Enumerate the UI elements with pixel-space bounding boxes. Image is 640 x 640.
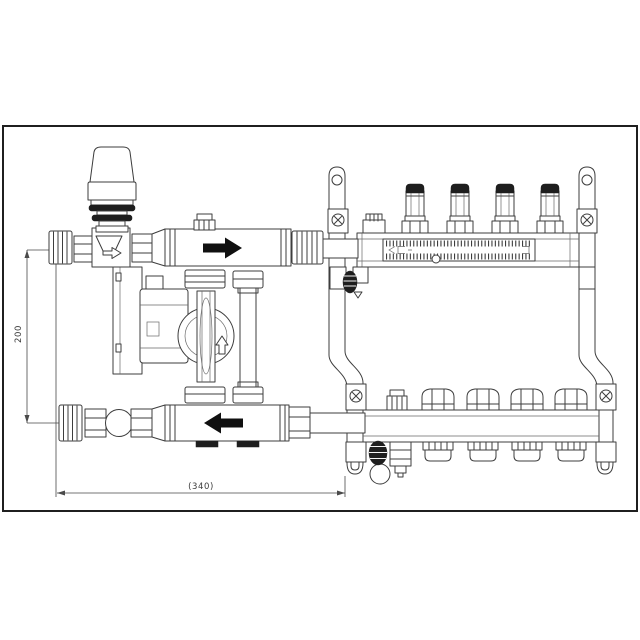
bracket-hole (582, 175, 592, 185)
bypass-riser-pipe (233, 271, 263, 403)
return-manifold-union (289, 407, 310, 438)
flow-meter-1 (402, 184, 428, 233)
manifold-flow-scale (383, 239, 535, 261)
dimension-width-340: (340) (57, 476, 345, 497)
height-dimension-label: 200 (14, 325, 24, 343)
dimension-height-200: 200 (14, 250, 59, 497)
thermostatic-mixing-valve (92, 228, 130, 267)
return-end-cap (387, 390, 407, 410)
drain-lanyard-loop (370, 464, 390, 484)
return-manifold-bar (363, 410, 599, 442)
drain-knob (369, 441, 387, 465)
manifold-port-hole (432, 255, 440, 263)
circuit-outlet-3 (512, 442, 542, 461)
valve-cap-1 (422, 389, 454, 410)
thermostatic-head (88, 147, 136, 232)
drawing-page: 200 (340) (0, 0, 640, 640)
supply-end-cap (363, 214, 385, 233)
supply-air-vent-valve (343, 267, 368, 298)
valve-cap-2 (467, 389, 499, 410)
technical-drawing-canvas: 200 (340) (0, 0, 640, 640)
mixing-unit (49, 147, 365, 447)
valve-cap-3 (511, 389, 543, 410)
supply-union-nut (49, 231, 72, 264)
circuit-outlet-2 (468, 442, 498, 461)
circuit-outlet-4 (556, 442, 586, 461)
valve-cap-4 (555, 389, 587, 410)
supply-manifold (343, 184, 579, 298)
width-dimension-label: (340) (188, 482, 214, 492)
return-manifold (363, 389, 599, 484)
return-line (59, 405, 365, 447)
drain-valve (369, 441, 411, 484)
circuit-outlet-1 (423, 442, 453, 461)
bracket-hole (332, 175, 342, 185)
pump-control-box (140, 276, 188, 363)
flow-meter-2 (447, 184, 473, 233)
pump-mounting-plate (113, 267, 142, 374)
ball-valve (106, 410, 133, 437)
return-union-nut (59, 405, 82, 441)
flow-meter-3 (492, 184, 518, 233)
flow-meter-4 (537, 184, 563, 233)
